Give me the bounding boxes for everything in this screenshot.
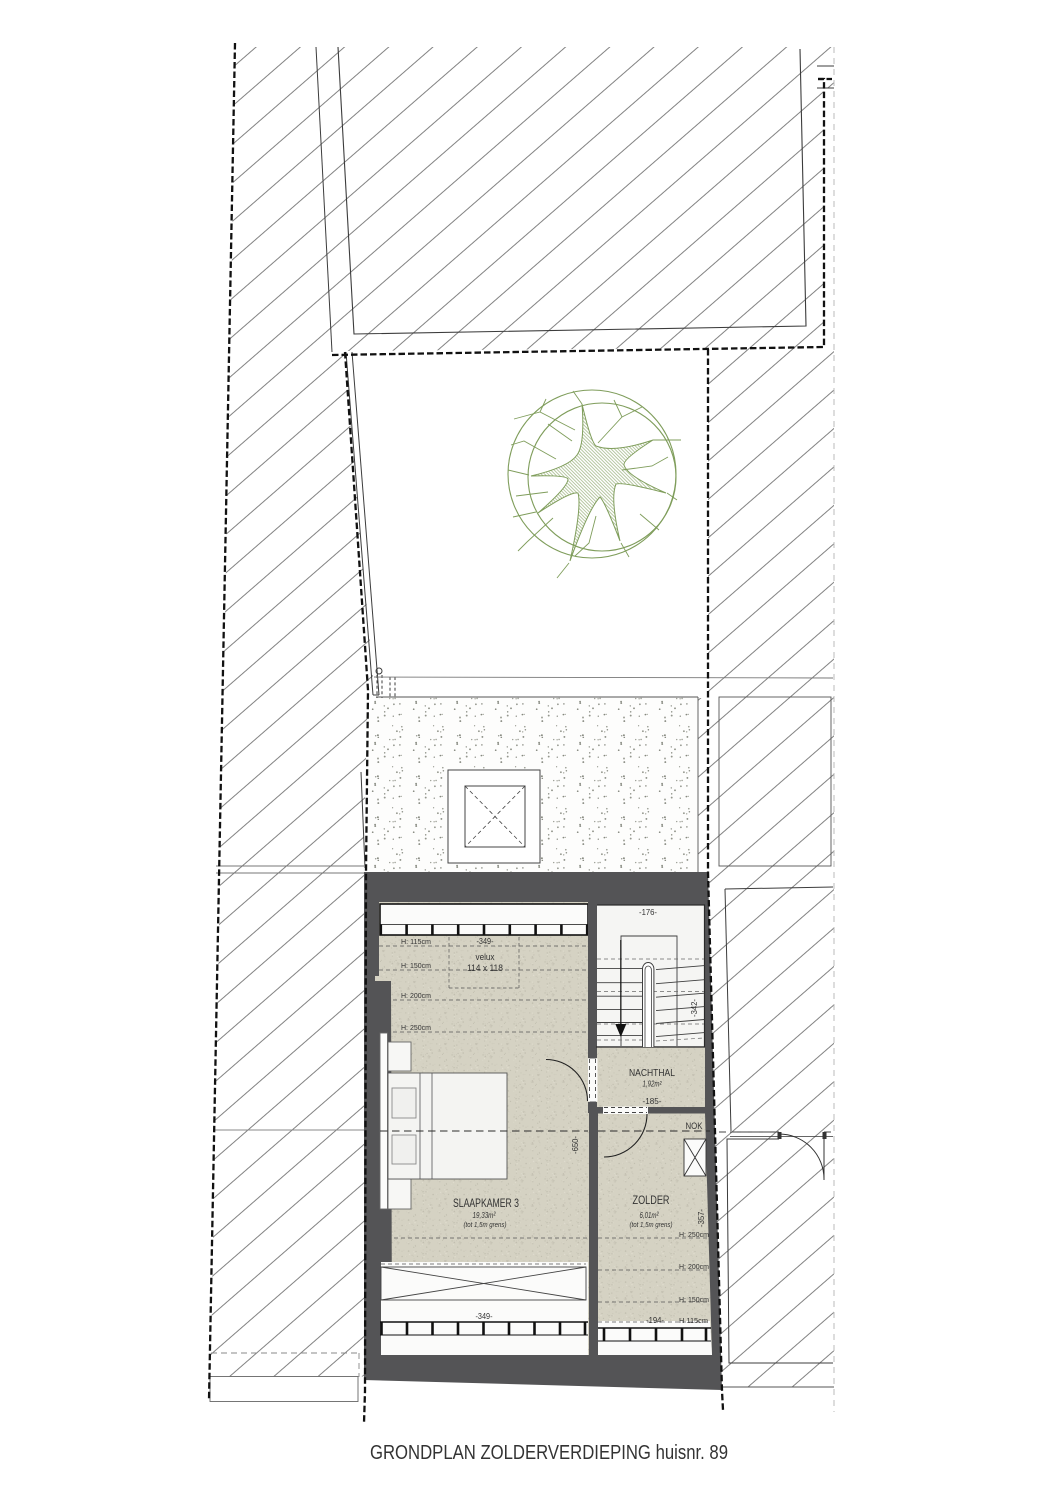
svg-text:-349-: -349-	[476, 1311, 493, 1321]
svg-text:H: 200cm: H: 200cm	[679, 1262, 709, 1271]
svg-text:(tot 1,5m grens): (tot 1,5m grens)	[464, 1220, 507, 1229]
svg-text:-194-: -194-	[646, 1315, 664, 1325]
svg-text:-650-: -650-	[570, 1136, 580, 1154]
svg-text:114 x 118: 114 x 118	[467, 963, 503, 973]
svg-text:GRONDPLAN ZOLDERVERDIEPING h: GRONDPLAN ZOLDERVERDIEPING huisnr. 89	[370, 1442, 728, 1464]
svg-text:SLAAPKAMER 3: SLAAPKAMER 3	[453, 1196, 519, 1210]
svg-text:1,92m²: 1,92m²	[643, 1080, 662, 1089]
svg-text:(tot 1,5m grens): (tot 1,5m grens)	[630, 1220, 673, 1229]
svg-text:H: 250cm: H: 250cm	[679, 1230, 709, 1239]
svg-text:19,33m²: 19,33m²	[473, 1210, 497, 1220]
svg-text:H: 200cm: H: 200cm	[401, 991, 431, 1000]
svg-text:H: 115cm: H: 115cm	[401, 937, 431, 946]
svg-text:-176-: -176-	[639, 907, 657, 917]
svg-text:NACHTHAL: NACHTHAL	[629, 1067, 675, 1079]
svg-text:-357-: -357-	[696, 1209, 706, 1227]
svg-text:H 115cm: H 115cm	[679, 1316, 708, 1325]
svg-text:H: 150cm: H: 150cm	[679, 1295, 709, 1304]
svg-text:NOK: NOK	[686, 1121, 703, 1131]
svg-text:H: 250cm: H: 250cm	[401, 1023, 431, 1032]
svg-text:-342-: -342-	[689, 999, 699, 1017]
svg-text:6,01m²: 6,01m²	[640, 1210, 660, 1220]
svg-text:velux: velux	[476, 952, 495, 962]
svg-text:H: 150cm: H: 150cm	[401, 961, 431, 970]
svg-text:-185-: -185-	[643, 1096, 662, 1106]
svg-text:-349-: -349-	[477, 936, 494, 946]
svg-text:ZOLDER: ZOLDER	[633, 1193, 670, 1207]
